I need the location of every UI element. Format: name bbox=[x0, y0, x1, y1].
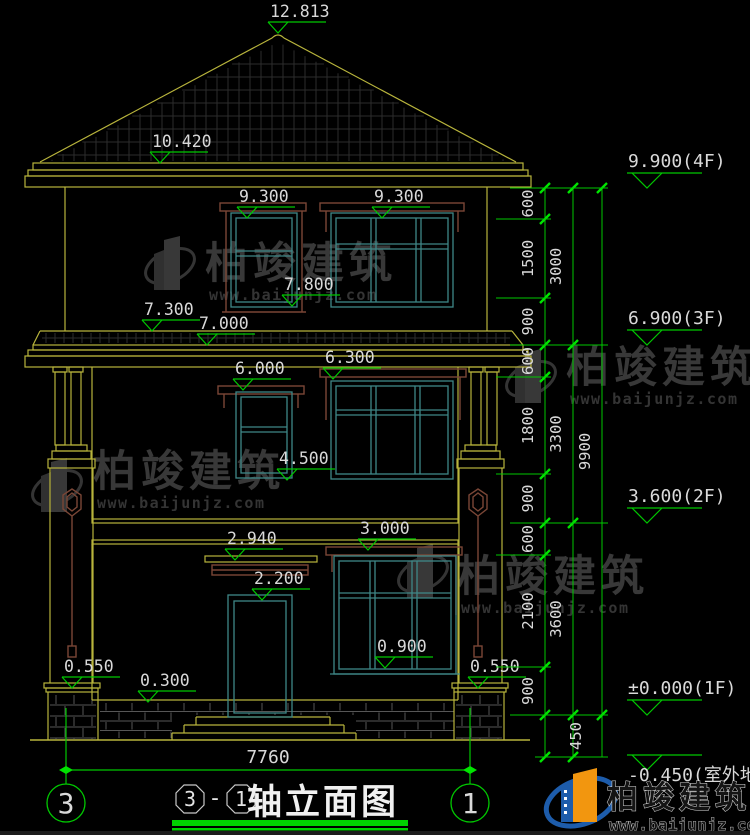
watermark-brand-text: 柏竣建筑 bbox=[566, 343, 750, 393]
dim-chain-label: 600 bbox=[519, 190, 537, 218]
drawing-background bbox=[0, 0, 750, 835]
dim-chain-label: 1800 bbox=[519, 407, 537, 444]
level-marker-label: 10.420 bbox=[152, 132, 212, 151]
cad-elevation-drawing: 柏竣建筑www.baijunjz.com柏竣建筑www.baijunjz.com… bbox=[0, 0, 750, 835]
dim-chain-label: 600 bbox=[519, 347, 537, 375]
axis-number-right: 1 bbox=[462, 787, 479, 820]
level-marker-label: 0.300 bbox=[140, 671, 190, 690]
dim-chain-label: 2100 bbox=[519, 592, 537, 629]
level-marker-label: 2.940 bbox=[227, 529, 277, 548]
level-marker-label: 12.813 bbox=[270, 2, 330, 21]
steps-mask bbox=[172, 715, 356, 739]
overall-width-dim: 7760 bbox=[246, 747, 289, 768]
level-marker-label: 9.300 bbox=[239, 187, 289, 206]
level-marker-label: 9.300 bbox=[374, 187, 424, 206]
watermark-brand-text: 柏竣建筑 bbox=[93, 447, 285, 497]
level-marker-label: 7.800 bbox=[284, 275, 334, 294]
level-marker-label: 3.000 bbox=[360, 519, 410, 538]
watermark-building-icon bbox=[417, 544, 433, 598]
dim-chain-label: 1500 bbox=[519, 240, 537, 277]
ref-number-end: 1 bbox=[235, 787, 247, 811]
watermark-brand-text: 柏竣建筑 bbox=[457, 552, 649, 602]
logo-brand-text: 柏竣建筑 bbox=[607, 780, 750, 816]
watermark-building-icon bbox=[154, 250, 164, 290]
dim-chain-label: 450 bbox=[567, 722, 585, 750]
floor-elevation-label: 9.900(4F) bbox=[628, 151, 726, 172]
level-marker-label: 7.000 bbox=[199, 314, 249, 333]
dim-chain-label: 900 bbox=[519, 308, 537, 336]
logo-building-blue-icon bbox=[561, 780, 573, 822]
floor-elevation-label: 3.600(2F) bbox=[628, 486, 726, 507]
dim-chain-label: 900 bbox=[519, 485, 537, 513]
ref-number-start: 3 bbox=[184, 787, 196, 811]
title-block: 3 - 1 轴立面图 bbox=[172, 783, 408, 831]
level-marker-label: 0.550 bbox=[64, 657, 114, 676]
level-marker-label: 0.900 bbox=[377, 637, 427, 656]
dim-chain-label: 3000 bbox=[547, 248, 565, 285]
dim-chain-label: 3600 bbox=[547, 600, 565, 637]
level-marker-label: 4.500 bbox=[279, 449, 329, 468]
bottom-edge-strip bbox=[0, 831, 750, 835]
watermark-site-text: www.baijunjz.com bbox=[97, 494, 266, 512]
axis-number-left: 3 bbox=[58, 787, 75, 820]
floor-elevation-label: 6.900(3F) bbox=[628, 308, 726, 329]
dim-chain-label: 3300 bbox=[547, 415, 565, 452]
watermark-building-icon bbox=[164, 236, 180, 290]
watermark-building-icon bbox=[51, 458, 67, 512]
level-marker-label: 6.300 bbox=[325, 348, 375, 367]
ref-dash: - bbox=[208, 786, 221, 811]
level-marker-label: 2.200 bbox=[254, 569, 304, 588]
title-underline-thin bbox=[172, 828, 408, 831]
dim-chain-label: 900 bbox=[519, 677, 537, 705]
level-marker-label: 7.300 bbox=[144, 300, 194, 319]
watermark-site-text: www.baijunjz.com bbox=[570, 390, 739, 408]
title-underline-thick bbox=[172, 820, 408, 826]
logo-building-orange-icon bbox=[573, 768, 597, 822]
drawing-title: 轴立面图 bbox=[247, 783, 399, 823]
dim-chain-label: 9900 bbox=[576, 433, 594, 470]
level-marker-label: 6.000 bbox=[235, 359, 285, 378]
dim-chain-label: 600 bbox=[519, 525, 537, 553]
floor-elevation-label: ±0.000(1F) bbox=[628, 678, 736, 699]
